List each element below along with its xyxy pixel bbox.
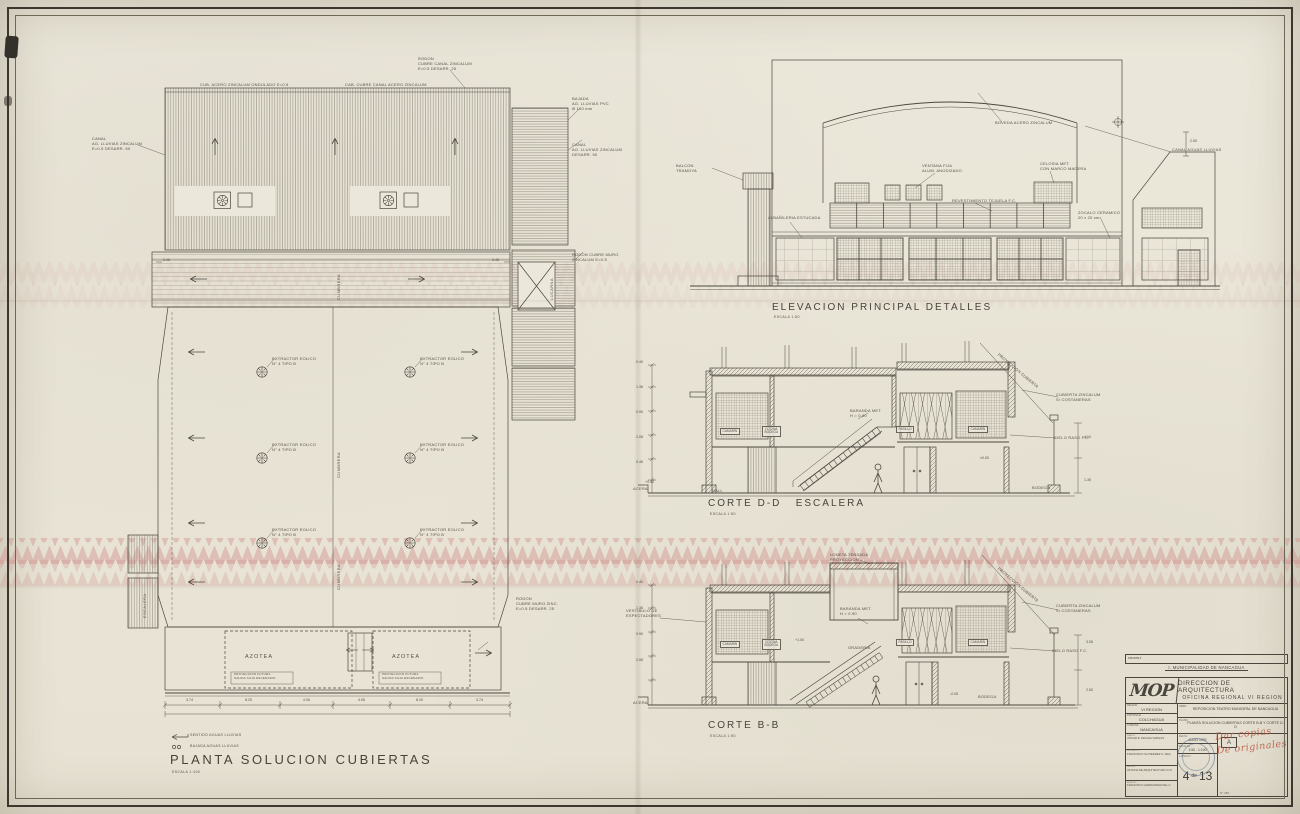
cbb-room-cocina: COCINA BODEGA [762,639,781,650]
plan-vent-callout-2: EXTRACTOR EOLICO N° 4 TIPO B [420,356,464,366]
plan-lucarna-label: LUCARNA [549,278,554,300]
plan-dim-3: 4.06 [303,698,310,702]
elev-callout-canal: CANAL AGUAS LLUVIAS [1172,147,1221,152]
plan-ridge-note-left: CUB. ACERO ZINCALUM ONDULADO E=0.5 [200,82,289,87]
elev-callout-boveda: BOVEDA ACERO ZINCALUM [995,120,1052,125]
plan-note-rodon-right: RODON CUBRE MURO ZINCALUM E=0.5 [572,252,619,262]
drawing-sheet: CUB. ACERO ZINCALUM ONDULADO E=0.5 CAB. … [0,0,1300,814]
cdd-bodega-label: BODEGA [1032,485,1050,490]
owner-name: I. MUNICIPALIDAD DE NANCAGUA [1125,665,1288,676]
plan-dim-1: 3.74 [186,698,193,702]
provincia-field: PROVINCIA COLCHAGUA [1126,714,1177,724]
elevation-drawing [690,60,1220,290]
project-name-field: OBRA REPOSICION TEATRO MUNICIPAL DE NANC… [1178,704,1287,718]
cdd-rdim-1: 4.10 [1084,435,1091,439]
cdd-level-00: ±0.00 [980,456,989,460]
elev-callout-zocalo: ZOCALO CERAMICO 20 x 20 cm [1078,210,1120,220]
plan-title: PLANTA SOLUCION CUBIERTAS [170,752,432,767]
plan-band-dim-left: 2.46 [163,258,170,262]
legend-downspout-label: BAJADA AGUAS LLUVIAS [190,744,239,748]
legend-flow-label: SENTIDO AGUAS LLUVIAS [190,733,241,737]
cdd-room-pasillo: PASILLO [896,426,914,433]
plan-azotea-note-right: PROYECCION FUTURA SALIDA CAJA ESCENARIO [382,673,424,681]
plan-azotea-right: AZOTEA [392,654,420,661]
plan-ridge-note-right: CAB. CUBRE CANAL ACERO ZINCALUM [345,82,427,87]
plan-note-bajada: BAJADA AG. LLUVIAS PVC Ø 100 mm [572,96,609,112]
elev-callout-balcon: BALCON TRAMOYA [676,163,697,173]
cbb-loneta-callout: LONETA TENSADA PROYECCION [830,552,868,562]
plan-dim-6: 3.74 [476,698,483,702]
corte-dd-scale: ESCALA 1:50 [710,512,736,516]
cbb-room-camarin-2: CAMARIN [968,639,988,646]
cdd-room-camarin-1: CAMARIN [720,428,740,435]
signature-proyecto: PROYECTO FRANCISCO GUTIERREZ S. ARQ. [1126,750,1177,766]
cbb-room-pasillo: PASILLO [896,639,914,646]
fold-line [634,0,642,814]
comuna-field: COMUNA NANCAGUA [1126,724,1177,733]
plan-note-canal-right: CANAL AG. LLUVIAS ZINCALUM DESARR. 50 [572,142,622,158]
drawing-linework [0,0,1300,814]
plan-band-dim-right: 2.46 [492,258,499,262]
region-field: REGION VI REGION [1126,704,1177,714]
plan-vent-callout-4: EXTRACTOR EOLICO N° 4 TIPO B [420,442,464,452]
corte-dd-title: CORTE D-D ESCALERA [708,498,865,509]
elev-dim: 2.50 [1190,139,1197,143]
legend-flow-direction: SENTIDO AGUAS LLUVIAS [190,733,241,737]
cbb-rdim-1: 3.06 [1086,640,1093,644]
department-name: DIRECCION DE ARQUITECTURA OFICINA REGION… [1178,678,1287,703]
elev-callout-ventana: VENTANA FIJA ALUM. ANODIZADO [922,163,962,173]
elev-callout-albanileria: ALBAÑILERIA ESTUCADA [768,215,820,220]
scan-smudge-2 [4,96,12,106]
cbb-graderia-label: GRADERIA [848,645,871,650]
crease-line-1 [0,300,1300,303]
legend-downspout: BAJADA AGUAS LLUVIAS [190,744,239,748]
cdd-room-camarin-2: CAMARIN [968,426,988,433]
elevation-title: ELEVACION PRINCIPAL DETALLES [772,302,992,313]
plan-vent-callout-1: EXTRACTOR EOLICO N° 4 TIPO B [272,356,316,366]
plan-vent-callout-5: EXTRACTOR EOLICO N° 4 TIPO B [272,527,316,537]
signature-fields: DIBUJO OSCAR E. MOLINA VARGAS PROYECTO F… [1126,734,1178,796]
cbb-room-camarin-1: CAMARIN [720,641,740,648]
plan-azotea-left: AZOTEA [245,654,273,661]
plan-scale: ESCALA 1:100 [172,770,200,774]
plan-ridge-label-1: CUMBRERA [336,274,341,300]
owner-field: PROPIET. [1125,654,1288,664]
cbb-cielo-callout: CIELO RASO F.C. [1052,648,1088,653]
cdd-cubierta-callout: CUBIERTA ZINCALUM S/ COSTANERAS [1056,392,1101,402]
cdd-hall-label: HALL [712,488,723,493]
corte-bb-scale: ESCALA 1:50 [710,734,736,738]
plan-note-canal-tr: RODON CUBRE CANAL ZINCALUM E=0.5 DESARR.… [418,56,472,72]
archive-number: N° 287 [1220,791,1229,795]
cbb-level-plus1: +1.00 [795,638,804,642]
pink-watermark [0,262,1300,586]
cdd-level-12: +0.12 [645,480,654,484]
plan-dim-4: 4.06 [358,698,365,702]
elevation-scale: ESCALA 1:50 [774,315,800,319]
cbb-baranda-callout: BARANDA MET. H = 0.90 [840,606,872,616]
plan-azotea-note-left: PROYECCION FUTURA SALIDA CAJA ESCENARIO [234,673,276,681]
cdd-baranda-callout: BARANDA MET. H = 0.90 [850,408,882,418]
cdd-room-cocina: COCINA BODEGA [762,426,781,437]
cbb-rdim-2: 2.50 [1086,688,1093,692]
cbb-bodega-label: BODEGA [978,694,996,699]
plan-ridge-label-2: CUMBRERA [336,452,341,478]
cbb-cubierta-callout: CUBIERTA ZINCALUM S/ COSTANERAS [1056,603,1101,613]
signature-aprobo: APROBO FRANCISCO HERNANDEZ DEL C. [1126,781,1177,796]
cdd-rdim-2: 1.35 [1084,478,1091,482]
signature-reviso: REVISO OFICINA DE ARQUITECTURA VI R. [1126,766,1177,782]
plan-dim-5: 8.20 [416,698,423,702]
roof-plan-drawing [128,70,583,749]
corte-bb-title: CORTE B-B [708,720,780,731]
mop-logo: MOP [1125,678,1180,703]
owner-field-label: PROPIET. [1128,656,1142,660]
crease-line-2 [0,586,1300,589]
cbb-vestibulo-callout: VESTIBULO DE ESPECTADORES [626,608,661,618]
department-line-2: OFICINA REGIONAL VI REGION [1182,695,1282,701]
plan-vent-callout-3: EXTRACTOR EOLICO N° 4 TIPO B [272,442,316,452]
plan-escalera-label: ESCALERA [142,593,147,618]
cbb-level-m05: -0.05 [950,692,958,696]
plan-dim-2: 8.20 [245,698,252,702]
plan-vent-callout-6: EXTRACTOR EOLICO N° 4 TIPO B [420,527,464,537]
department-line-1: DIRECCION DE ARQUITECTURA [1178,680,1287,694]
plan-note-rodon-bottom: RODON CUBRE MURO ZINC. E=0.5 DESARR. 25 [516,596,558,612]
location-fields: REGION VI REGION PROVINCIA COLCHAGUA COM… [1126,704,1178,733]
elev-callout-revestimiento: REVESTIMIENTO TEJUELA F.C. [952,198,1016,203]
signature-dibujo: DIBUJO OSCAR E. MOLINA VARGAS [1126,734,1177,750]
scan-smudge-1 [4,36,19,59]
elev-callout-celosia: CELOSIA MET. CON MARCO MADERA [1040,161,1086,171]
plan-note-canal-left: CANAL AG. LLUVIAS ZINCALUM E=0.5 DESARR.… [92,136,142,152]
